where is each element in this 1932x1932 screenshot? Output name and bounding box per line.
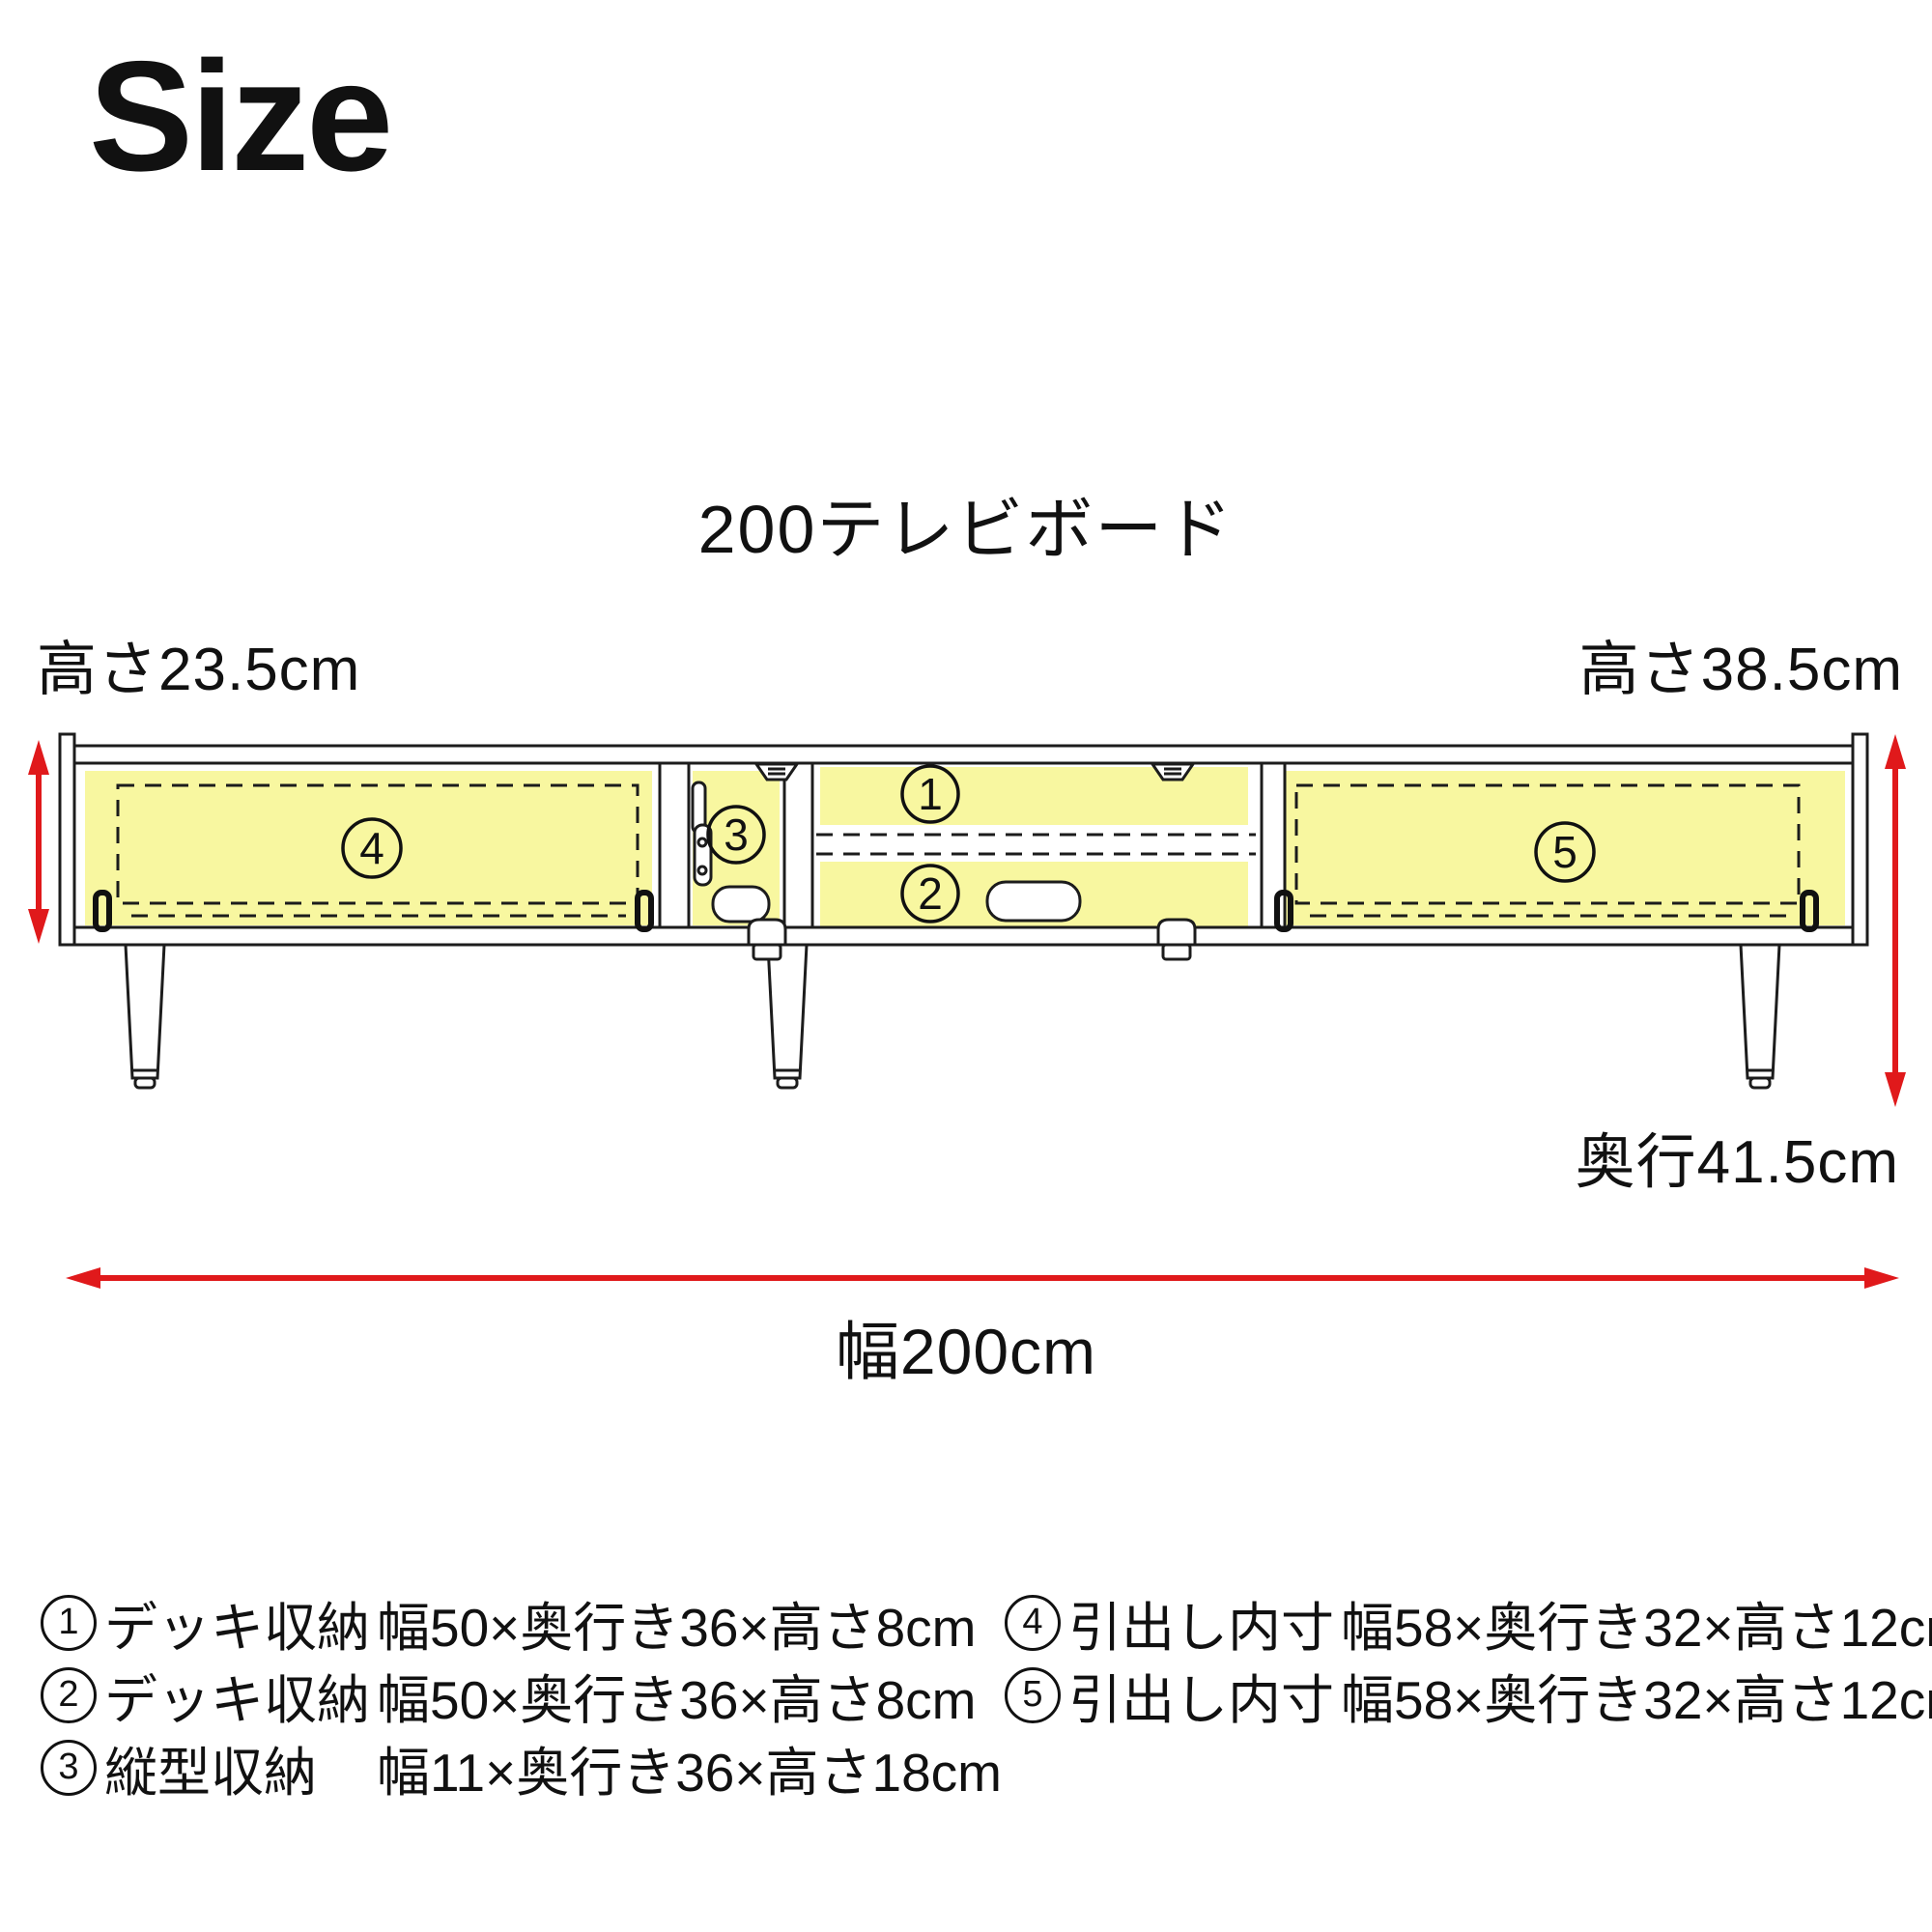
legend-dims-2: 幅50×奥行き36×高さ8cm [377, 1657, 977, 1734]
leg-middle [768, 945, 807, 1088]
divider-3 [1262, 763, 1285, 927]
compartment-4-number: 4 [359, 823, 384, 873]
legend-dims-1: 幅50×奥行き36×高さ8cm [377, 1584, 977, 1662]
legend-badge-2: 2 [41, 1667, 97, 1723]
legend-item-5: 5 引出し内寸 幅58×奥行き32×高さ12cm [1005, 1659, 1932, 1731]
width-arrow [66, 1267, 1899, 1289]
compartment-3-number: 3 [724, 810, 749, 860]
legend-badge-3: 3 [41, 1740, 97, 1796]
right-side-panel [1853, 734, 1867, 945]
legend-item-1: 1 デッキ収納 幅50×奥行き36×高さ8cm [41, 1586, 1002, 1659]
left-side-panel [60, 734, 74, 945]
legs [126, 945, 1779, 1088]
divider-2 [784, 763, 812, 927]
height-arrow-right [1885, 734, 1906, 1107]
legend-badge-1: 1 [41, 1595, 97, 1651]
leg-right [1741, 945, 1779, 1088]
legend-item-4: 4 引出し内寸 幅58×奥行き32×高さ12cm [1005, 1586, 1932, 1659]
legend-dims-5: 幅58×奥行き32×高さ12cm [1341, 1657, 1932, 1734]
legend-item-2: 2 デッキ収納 幅50×奥行き36×高さ8cm [41, 1659, 1002, 1731]
bottom-clip-1 [749, 920, 785, 959]
legend-name-3: 縦型収納 [104, 1729, 377, 1806]
cable-hole-3 [713, 887, 769, 922]
bottom-panel [74, 927, 1853, 945]
legend-badge-5: 5 [1005, 1667, 1061, 1723]
legend-dims-4: 幅58×奥行き32×高さ12cm [1341, 1584, 1932, 1662]
compartment-5-number: 5 [1552, 827, 1577, 877]
legend-dims-3: 幅11×奥行き36×高さ18cm [377, 1729, 1002, 1806]
divider-1 [660, 763, 689, 927]
legend-name-5: 引出し内寸 [1068, 1657, 1341, 1734]
legend-badge-4: 4 [1005, 1595, 1061, 1651]
bottom-clip-2 [1158, 920, 1195, 959]
top-panel [74, 746, 1853, 763]
legend-item-3: 3 縦型収納 幅11×奥行き36×高さ18cm [41, 1731, 1002, 1804]
hinge-screw-1 [698, 838, 706, 846]
legend-right-column: 4 引出し内寸 幅58×奥行き32×高さ12cm 5 引出し内寸 幅58×奥行き… [1005, 1586, 1932, 1731]
legend-name-4: 引出し内寸 [1068, 1584, 1341, 1662]
page: Size 200テレビボード 高さ23.5cm 高さ38.5cm 奥行41.5c… [0, 0, 1932, 1932]
cable-hole-2 [987, 882, 1080, 921]
hinge-screw-2 [698, 867, 706, 874]
legend-name-1: デッキ収納 [104, 1584, 377, 1662]
leg-left [126, 945, 164, 1088]
compartment-1-number: 1 [918, 769, 943, 819]
legend-name-2: デッキ収納 [104, 1657, 377, 1734]
legend-left-column: 1 デッキ収納 幅50×奥行き36×高さ8cm 2 デッキ収納 幅50×奥行き3… [41, 1586, 1002, 1804]
height-arrow-left [28, 740, 49, 944]
compartment-2-number: 2 [918, 868, 943, 919]
